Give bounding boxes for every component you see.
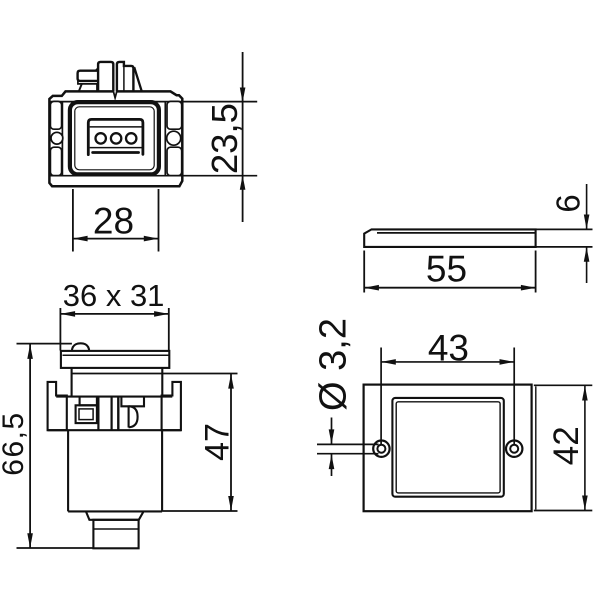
svg-text:6: 6 bbox=[550, 194, 587, 212]
svg-text:Ø 3,2: Ø 3,2 bbox=[313, 318, 355, 411]
svg-text:55: 55 bbox=[426, 249, 467, 290]
svg-text:42: 42 bbox=[547, 426, 586, 465]
svg-text:23,5: 23,5 bbox=[204, 103, 245, 174]
svg-text:43: 43 bbox=[428, 327, 469, 368]
svg-text:66,5: 66,5 bbox=[0, 411, 30, 475]
svg-text:36 x 31: 36 x 31 bbox=[63, 278, 165, 313]
svg-text:47: 47 bbox=[199, 423, 237, 461]
svg-text:28: 28 bbox=[93, 201, 134, 242]
